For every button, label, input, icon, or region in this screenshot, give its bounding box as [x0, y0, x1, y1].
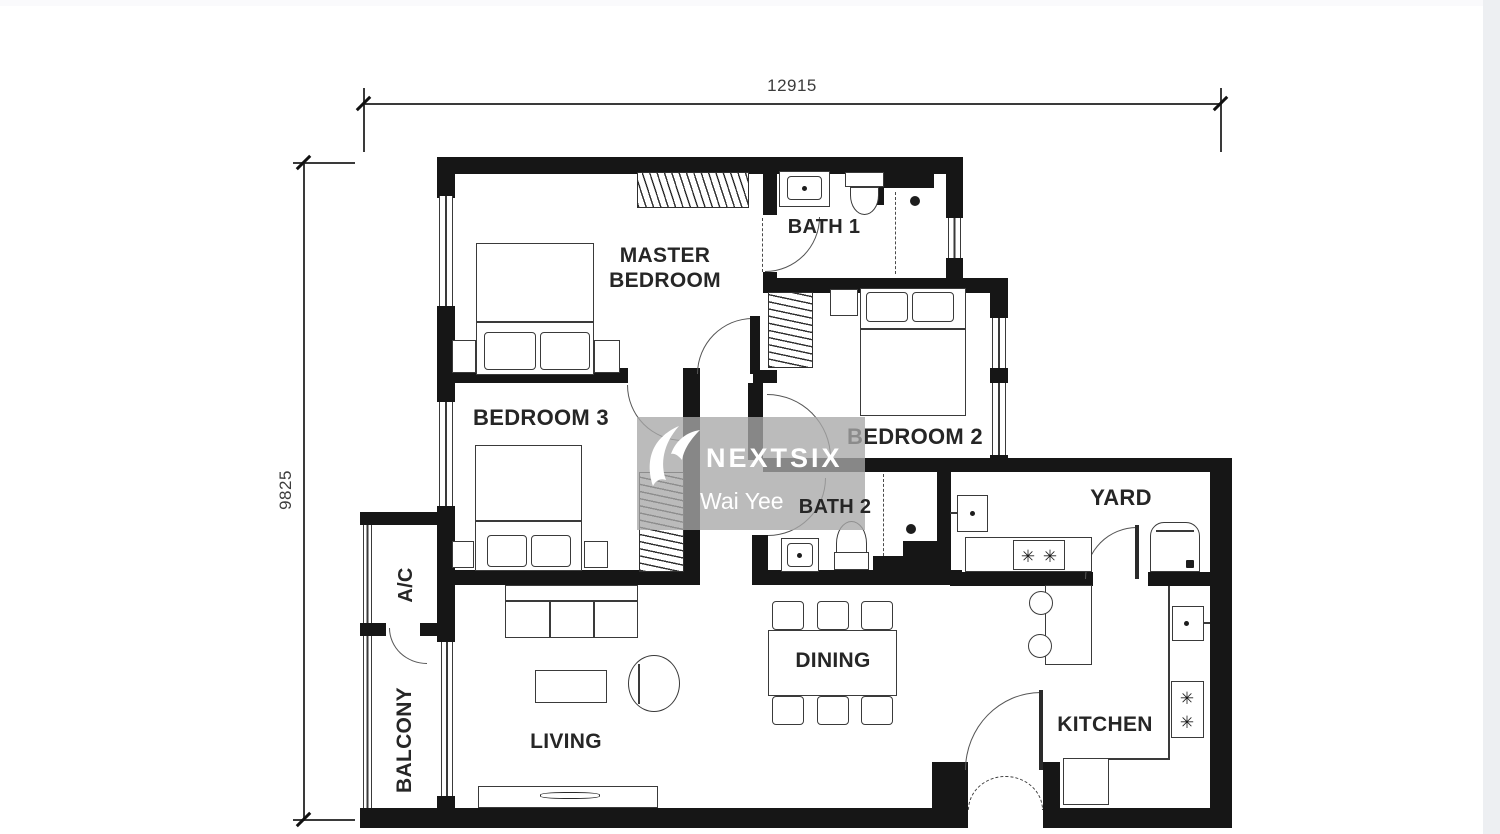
toilet-bowl [850, 187, 879, 215]
wall [360, 512, 438, 525]
sofa-divider [593, 600, 595, 638]
window [439, 196, 453, 306]
wall [437, 570, 700, 585]
basin-drain [797, 553, 802, 558]
door-arc-yard [1085, 527, 1137, 579]
dining-chair [772, 601, 804, 630]
wall [990, 278, 1008, 318]
pillow [866, 292, 908, 322]
wall [990, 368, 1008, 383]
toilet-tank [845, 172, 884, 187]
wall [950, 572, 1093, 586]
dimension-value-top: 12915 [757, 76, 827, 96]
coffee-table [535, 670, 607, 703]
door-leaf-master [750, 316, 760, 374]
bar-stool [1029, 591, 1053, 615]
window [992, 383, 1006, 455]
sofa-divider [549, 600, 551, 638]
wall [1043, 808, 1232, 828]
room-label-dining: DINING [785, 647, 881, 675]
shower-head [906, 524, 916, 534]
shower-platform [873, 556, 940, 572]
right-edge-strip [1483, 0, 1500, 834]
nightstand [452, 340, 476, 373]
wardrobe [637, 172, 749, 208]
sink-drain [1184, 621, 1189, 626]
shower-platform [903, 541, 940, 556]
dining-chair [772, 696, 804, 725]
nextsix-logo-icon [643, 422, 701, 488]
wall [763, 157, 777, 215]
dimension-value-left: 9825 [276, 455, 296, 525]
sofa [505, 585, 638, 638]
burner-icon: ✳ [1018, 546, 1038, 566]
sofa-back-line [505, 600, 638, 602]
door-leaf-kitchen [1039, 690, 1043, 770]
entry-pillar [1043, 762, 1060, 810]
wall [752, 570, 962, 585]
pillow [912, 292, 954, 322]
room-label-ac: A/C [392, 550, 420, 620]
room-label-balcony: BALCONY [390, 660, 420, 820]
basin-drain [802, 186, 807, 191]
armchair-line [638, 664, 640, 704]
wall [1148, 572, 1210, 586]
washing-machine-detail [1186, 560, 1194, 568]
window [992, 318, 1006, 368]
wall [437, 585, 455, 628]
nightstand [830, 289, 858, 316]
pillow [531, 535, 571, 567]
room-label-master-bedroom: MASTER BEDROOM [595, 240, 735, 296]
floor-plan-page: 12915 9825 [0, 0, 1500, 834]
bed-line [475, 520, 582, 522]
door-arc-master [697, 318, 753, 374]
dimension-extension [1220, 88, 1222, 152]
washing-machine-line [1156, 530, 1194, 532]
door-arc-ac [389, 628, 427, 664]
bed-line [860, 328, 966, 330]
wall [763, 272, 777, 293]
window [363, 525, 372, 623]
armchair [628, 655, 680, 712]
pillow [487, 535, 527, 567]
dimension-extension [363, 88, 365, 152]
wardrobe [768, 292, 813, 368]
nightstand [452, 541, 474, 568]
bed-line [476, 321, 594, 323]
dining-chair [817, 696, 849, 725]
window [439, 402, 453, 506]
wall [437, 157, 455, 198]
pillow [540, 332, 590, 370]
counter-edge [1108, 758, 1170, 760]
dining-chair [861, 601, 893, 630]
toilet-tank [834, 552, 869, 570]
top-edge-strip [0, 0, 1500, 6]
dining-chair [817, 601, 849, 630]
shower-curtain [895, 192, 897, 274]
shower-curtain [883, 474, 885, 556]
counter-edge [1168, 586, 1170, 758]
room-label-yard: YARD [1080, 484, 1162, 512]
nightstand [584, 541, 608, 568]
window [363, 636, 372, 808]
room-label-bath1: BATH 1 [778, 214, 870, 240]
wall [990, 455, 1008, 472]
entry-pillar [932, 762, 968, 810]
dining-chair [861, 696, 893, 725]
window [948, 218, 961, 258]
kitchen-cabinet [1063, 758, 1109, 805]
room-label-bath2: BATH 2 [790, 494, 880, 520]
room-label-bedroom3: BEDROOM 3 [465, 404, 617, 432]
dimension-line-left [303, 163, 305, 820]
door-leaf-bath1 [762, 218, 764, 272]
pillow [484, 332, 536, 370]
burner-icon: ✳ [1177, 688, 1197, 708]
room-label-living: LIVING [520, 728, 612, 756]
appliance-handle [950, 512, 957, 514]
kitchen-island [1045, 585, 1092, 665]
dimension-line-top [363, 103, 1221, 105]
entrance-door-swing [968, 776, 1043, 810]
wall [1210, 458, 1232, 828]
nightstand [594, 340, 620, 373]
burner-icon: ✳ [1177, 712, 1197, 732]
door-leaf-yard [1135, 525, 1139, 579]
shower-head [910, 196, 920, 206]
tv [540, 792, 600, 799]
wall [360, 623, 386, 636]
bar-stool [1028, 634, 1052, 658]
wall [360, 808, 968, 828]
wall [884, 166, 934, 188]
watermark-brand: NEXTSIX [706, 441, 864, 475]
appliance-knob [970, 511, 975, 516]
sink-faucet [1203, 622, 1210, 624]
sliding-door [441, 642, 453, 798]
room-label-kitchen: KITCHEN [1046, 711, 1164, 739]
burner-icon: ✳ [1040, 546, 1060, 566]
door-arc-kitchen [965, 692, 1041, 770]
wall [946, 157, 963, 218]
